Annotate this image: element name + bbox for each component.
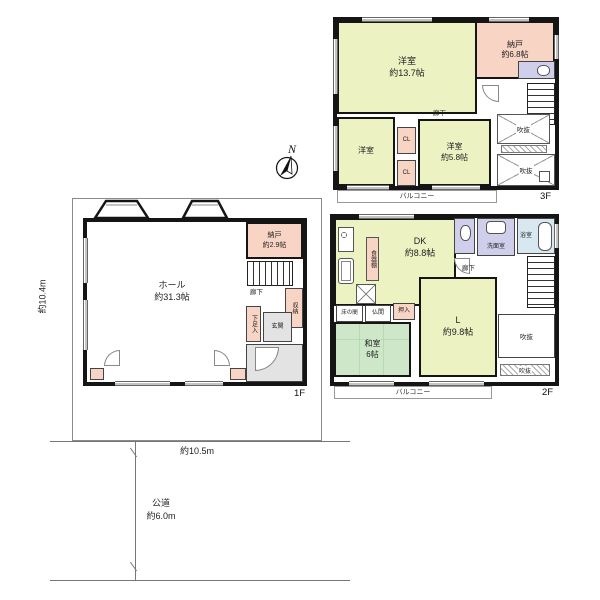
washbasin-icon (486, 221, 506, 234)
void-label: 吹抜 (516, 124, 531, 134)
window (333, 126, 338, 171)
room-label: 浴室 (520, 233, 532, 240)
room-label: 納戸 約2.9帖 (263, 231, 287, 249)
floor2-toilet (454, 218, 475, 254)
window (333, 39, 338, 94)
balcony-label: バルコニー (396, 388, 431, 397)
site-width-label: 約10.5m (152, 444, 242, 457)
north-label: N (287, 142, 297, 156)
floor3-void-hatch-bar (501, 145, 547, 153)
floor2-hallway-label: 廊下 (462, 262, 475, 272)
window (349, 381, 394, 386)
road-edge-top (50, 441, 350, 442)
room-label: 納戸 約6.8帖 (501, 40, 528, 61)
room-label: DK 約8.8帖 (384, 236, 456, 259)
window (489, 17, 529, 22)
floor2-void-strip: 吹抜 (500, 364, 550, 376)
floor2-balcony: バルコニー (334, 386, 492, 399)
room-label: 玄関 (271, 324, 283, 331)
room-label: 押入 (398, 308, 410, 315)
floor2-stairs (527, 256, 555, 308)
floor2-tokonoma: 床の間 (336, 305, 363, 322)
road-edge-bottom (50, 580, 350, 581)
floor1-shoe-closet: 下足入 (246, 306, 261, 342)
bay-windows (90, 197, 240, 219)
floor1-hall-label: ホール 約31.3帖 (107, 280, 237, 303)
floor2-room-living: L 約9.8帖 (419, 277, 497, 377)
floor1-entrance: 玄関 (263, 312, 292, 342)
void-label: 吹抜 (520, 331, 533, 341)
room-label: 食器棚 (370, 250, 376, 268)
road-label: 公道 約6.0m (130, 496, 192, 522)
window (115, 381, 170, 386)
room-label: CL (403, 137, 411, 144)
floor2-building: DK 約8.8帖 食器棚 洗面室 浴室 廊下 L 約9.8帖 床の間 (330, 214, 559, 386)
floor2-tag: 2F (542, 387, 553, 398)
room-label: L 約9.8帖 (443, 315, 474, 338)
window (347, 185, 389, 190)
room-label: 和室 6帖 (365, 339, 381, 360)
floor3-cl-upper: CL (397, 127, 416, 154)
compass: N (273, 140, 309, 184)
floor1-corner-box-right (230, 368, 246, 380)
door-arc (104, 350, 120, 366)
floor2-cupboard: 食器棚 (366, 237, 379, 281)
void-label: 吹抜 (518, 366, 532, 375)
sink-icon (338, 258, 354, 284)
floorplan-canvas: 洋室 約13.7帖 納戸 約6.8帖 廊下 洋室 CL CL 洋室 約5.8帖 … (0, 0, 600, 600)
floor1-stairs (247, 261, 293, 286)
toilet-icon (460, 225, 471, 241)
floor2-room-washitsu: 和室 6帖 (334, 322, 411, 377)
void-label: 吹抜 (519, 165, 534, 175)
floor3-room-western-small: 洋室 (337, 117, 395, 186)
floor3-balcony: バルコニー (337, 190, 497, 203)
floor2-washroom: 洗面室 (477, 218, 515, 256)
floor1-building: ホール 約31.3帖 納戸 約2.9帖 廊下 収納 下足入 玄関 (83, 218, 307, 386)
bathtub-icon (538, 222, 552, 251)
door-arc (482, 85, 499, 102)
floor3-hallway-label: 廊下 (433, 107, 446, 117)
floor1-porch (246, 344, 303, 382)
refrigerator-space-icon (356, 284, 376, 304)
room-label: 洋室 (358, 146, 374, 156)
floor3-void-upper: 吹抜 (497, 114, 550, 144)
floor3-tag: 3F (540, 191, 551, 202)
room-label: CL (403, 170, 411, 177)
floor3-room-western-58: 洋室 約5.8帖 (418, 119, 491, 186)
room-label: 床の間 (341, 310, 358, 316)
site-depth-label: 約10.4m (36, 261, 49, 333)
door-arc (255, 347, 279, 371)
balcony-label: バルコニー (400, 192, 435, 201)
window (362, 17, 432, 22)
room-label: 洋室 約13.7帖 (389, 56, 425, 79)
room-label: 下足入 (251, 315, 257, 333)
window (83, 238, 88, 283)
floor2-butsuma: 仏間 (365, 305, 391, 322)
window (83, 300, 88, 350)
floor3-toilet (518, 61, 555, 79)
window (432, 185, 480, 190)
floor3-room-western-large: 洋室 約13.7帖 (337, 21, 477, 114)
window (185, 381, 223, 386)
floor2-bathroom: 浴室 (517, 218, 555, 254)
window (554, 224, 559, 248)
floor1-tag: 1F (294, 388, 305, 399)
room-label: 仏間 (372, 310, 384, 317)
window (359, 214, 414, 219)
room-label: 洗面室 (487, 244, 505, 251)
floor2-void-main: 吹抜 (498, 314, 555, 358)
floor3-building: 洋室 約13.7帖 納戸 約6.8帖 廊下 洋室 CL CL 洋室 約5.8帖 … (333, 17, 559, 190)
floor2-oshiire: 押入 (393, 303, 415, 320)
floor3-cl-lower: CL (397, 160, 416, 186)
window (429, 381, 484, 386)
floor1-corner-box-left (90, 368, 104, 380)
room-label: 洋室 約5.8帖 (441, 142, 468, 163)
floor1-room-closet: 納戸 約2.9帖 (246, 222, 303, 259)
toilet-icon (537, 65, 550, 76)
door-arc (214, 350, 230, 366)
window (554, 35, 559, 59)
stove-icon (338, 227, 354, 252)
floor1-hallway-label: 廊下 (250, 286, 263, 296)
floor3-corner-box (539, 171, 550, 182)
